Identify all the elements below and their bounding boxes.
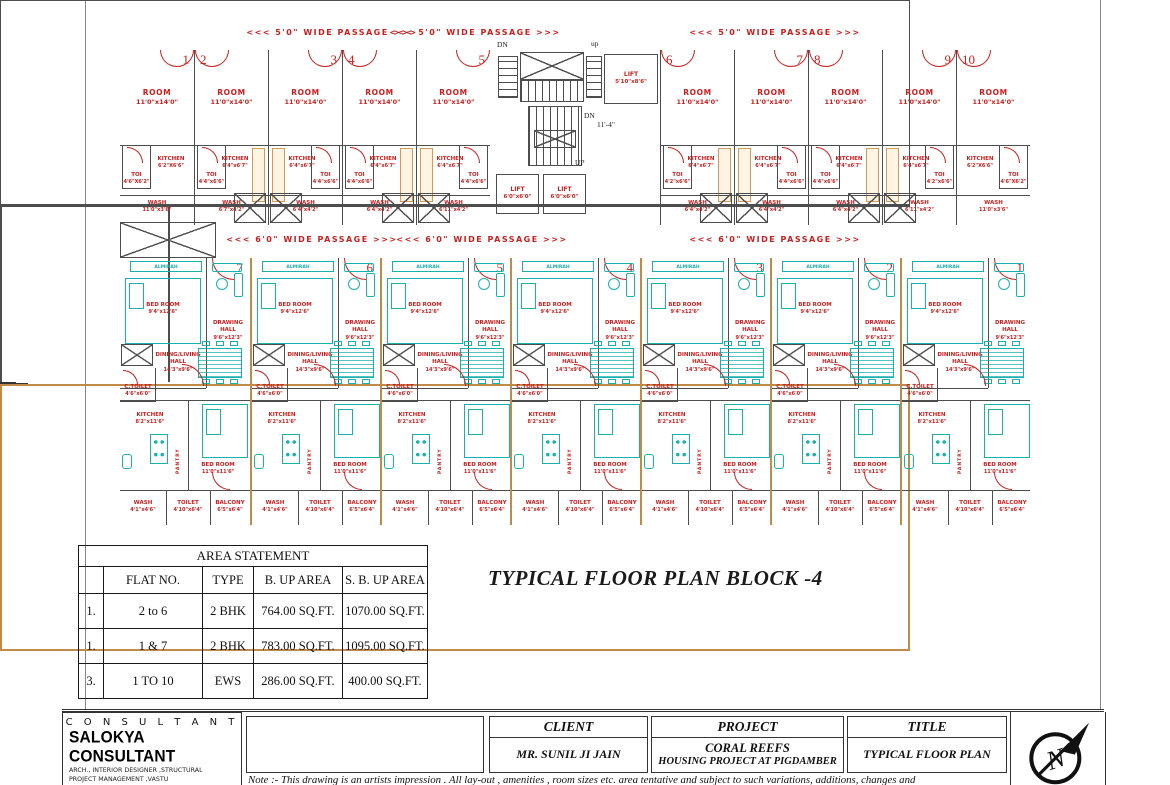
kitchen-label: KITCHEN8'2"x11'6"	[516, 412, 568, 426]
table-cell: 286.00 SQ.FT.	[254, 664, 343, 699]
wash-label-text: WASH	[902, 500, 948, 507]
toi-label-text: TOI	[123, 172, 150, 179]
door-arc-icon	[604, 472, 622, 490]
chair-icon	[348, 341, 356, 346]
common-toilet-label: C.TOILET4'6"x6'0"	[382, 384, 418, 398]
client-header: CLIENT	[490, 717, 647, 738]
sofa-icon	[886, 273, 895, 297]
drawing-hall-label-dim: 9'6"x12'3"	[728, 335, 772, 342]
balcony-label: BALCONY6'5"x6'4"	[992, 500, 1032, 514]
table-icon	[738, 278, 750, 290]
wall-line	[120, 400, 250, 401]
stair-side-icon	[586, 56, 602, 98]
lift-label-dim: 6'0"x6'0"	[551, 194, 579, 201]
toi-label-text: TOI	[926, 172, 953, 179]
table-header-cell: S. B. UP AREA	[343, 567, 428, 594]
wash-label-dim: 4'1"x4'6"	[902, 507, 948, 514]
wash-label-text: WASH	[512, 500, 558, 507]
chair-icon	[362, 341, 370, 346]
table-cell: 400.00 SQ.FT.	[343, 664, 428, 699]
titleblock-empty-box	[246, 716, 484, 773]
shaft-icon	[513, 344, 545, 366]
bhk-unit-1: 1ALMIRAHBED ROOM9'4"x12'6"DRAWING HALL9'…	[900, 258, 1030, 525]
room-label-dim: 11'0"x14'0"	[120, 98, 194, 107]
kitchen-label-dim: 8'2"x11'6"	[124, 419, 176, 426]
lift-label-dim: 5'10"x8'6"	[615, 79, 647, 86]
bed-room-label-text: BED ROOM	[777, 302, 853, 309]
wash-label: WASH4'1"x4'6"	[512, 500, 558, 514]
balcony-label-dim: 6'5"x6'4"	[602, 507, 642, 514]
lift-label-text: LIFT	[551, 186, 579, 194]
toilet-label-dim: 4'10"x6'4"	[688, 507, 732, 514]
table-header-cell	[79, 567, 104, 594]
toilet-box: TOI4'6"X6'2"	[122, 145, 151, 189]
wall-line	[120, 195, 194, 196]
stair-side-icon	[498, 56, 518, 98]
stair-dim-label: 11'-4"	[597, 120, 615, 129]
bhk-unit-7: 7ALMIRAHBED ROOM9'4"x12'6"DRAWING HALL9'…	[120, 258, 250, 525]
table-cell: 1.	[79, 594, 104, 629]
chair-icon	[1012, 379, 1020, 384]
drawing-hall-label-text: DRAWING HALL	[988, 320, 1032, 335]
sofa-icon	[734, 263, 764, 272]
pantry-label: PANTRY	[828, 432, 833, 474]
table-header-cell: B. UP AREA	[254, 567, 343, 594]
passage-label-mid: <<< 6'0" WIDE PASSAGE >>>	[396, 235, 567, 244]
passage-label-top: <<< 5'0" WIDE PASSAGE >>>	[389, 28, 560, 37]
toi-label-dim: 4'4"x6'6"	[778, 179, 805, 186]
chair-icon	[492, 379, 500, 384]
common-toilet-label-text: C.TOILET	[642, 384, 678, 391]
toi-label: TOI4'2"x6'6"	[926, 172, 953, 186]
toilet-label-text: TOILET	[166, 500, 210, 507]
drawing-hall-label-text: DRAWING HALL	[338, 320, 382, 335]
bed-icon	[724, 404, 770, 458]
room-label-text: ROOM	[120, 88, 194, 98]
door-arc-icon	[994, 472, 1012, 490]
room-label-text: ROOM	[661, 88, 734, 98]
plan-title: TYPICAL FLOOR PLAN BLOCK -4	[488, 566, 823, 591]
door-arc-icon	[202, 147, 218, 163]
drawing-hall-label: DRAWING HALL9'6"x12'3"	[858, 320, 902, 342]
chair-icon	[478, 341, 486, 346]
shaft-icon	[382, 193, 414, 223]
toilet-box: TOI4'4"x6'6"	[345, 145, 374, 189]
table-cell: 1 & 7	[104, 629, 203, 664]
common-toilet-label-dim: 4'6"x6'0"	[902, 391, 938, 398]
toilet-label: TOILET4'10"x6'4"	[688, 500, 732, 514]
common-toilet-label: C.TOILET4'6"x6'0"	[902, 384, 938, 398]
door-arc-icon	[782, 147, 798, 163]
common-toilet-label: C.TOILET4'6"x6'0"	[642, 384, 678, 398]
kitchen-label-dim: 6'2"X6'6"	[152, 163, 190, 170]
kitchen-label-text: KITCHEN	[646, 412, 698, 419]
toilet-label-text: TOILET	[298, 500, 342, 507]
door-arc-icon	[734, 472, 752, 490]
dining-table-icon	[590, 348, 634, 378]
balcony-label: BALCONY6'5"x6'4"	[862, 500, 902, 514]
chair-icon	[362, 379, 370, 384]
lift-label: LIFT6'0"x6'0"	[504, 186, 532, 202]
toi-label-text: TOI	[460, 172, 487, 179]
table-cell: 1095.00 SQ.FT.	[343, 629, 428, 664]
common-toilet-label-dim: 4'6"x6'0"	[642, 391, 678, 398]
disclaimer-note: Note :- This drawing is an artists impre…	[248, 774, 1028, 785]
kitchen-label-text: KITCHEN	[256, 412, 308, 419]
room-label: ROOM11'0"x14'0"	[343, 88, 416, 107]
wall-line	[252, 400, 380, 401]
chair-icon	[230, 379, 238, 384]
balcony-label-dim: 6'5"x6'4"	[732, 507, 772, 514]
table-icon	[998, 278, 1010, 290]
kitchen-label-text: KITCHEN	[516, 412, 568, 419]
bed-room-label-text: BED ROOM	[125, 302, 201, 309]
project-name: CORAL REEFS	[652, 741, 843, 756]
toi-label-text: TOI	[664, 172, 691, 179]
toi-label: TOI4'6"X6'2"	[123, 172, 150, 186]
consultant-header: C O N S U L T A N T	[63, 717, 241, 728]
wash-label-dim: 4'1"x4'6"	[642, 507, 688, 514]
toi-label-dim: 4'4"x6'6"	[312, 179, 339, 186]
wash-label-text: WASH	[120, 500, 166, 507]
dining-table-icon	[720, 348, 764, 378]
sink-icon	[384, 454, 394, 469]
client-name: MR. SUNIL JI JAIN	[490, 738, 647, 762]
room-label: ROOM11'0"x14'0"	[195, 88, 268, 107]
drawing-hall-label: DRAWING HALL9'6"x12'3"	[598, 320, 642, 342]
toilet-box: TOI4'2"x6'6"	[663, 145, 692, 189]
toi-label: TOI4'4"x6'6"	[198, 172, 225, 186]
chair-icon	[882, 341, 890, 346]
passage-label-mid: <<< 6'0" WIDE PASSAGE >>>	[689, 235, 860, 244]
chair-icon	[738, 379, 746, 384]
client-box: CLIENT MR. SUNIL JI JAIN	[489, 716, 648, 773]
toi-label: TOI4'4"x6'6"	[346, 172, 373, 186]
bhk-unit-2: 2ALMIRAHBED ROOM9'4"x12'6"DRAWING HALL9'…	[770, 258, 900, 525]
shaft-icon	[736, 193, 768, 223]
wash-label: WASH4'1"x4'6"	[252, 500, 298, 514]
wall-line	[957, 195, 1030, 196]
room-label-text: ROOM	[195, 88, 268, 98]
toi-label-text: TOI	[812, 172, 839, 179]
kitchen-label-dim: 6'2"X6'6"	[961, 163, 999, 170]
kitchen-label-dim: 8'2"x11'6"	[256, 419, 308, 426]
balcony-label-text: BALCONY	[210, 500, 250, 507]
stove-icon	[932, 434, 950, 464]
balcony-label: BALCONY6'5"x6'4"	[602, 500, 642, 514]
balcony-label-text: BALCONY	[732, 500, 772, 507]
balcony-label-dim: 6'5"x6'4"	[210, 507, 250, 514]
kitchen-label: KITCHEN6'2"X6'6"	[152, 156, 190, 170]
toilet-label-text: TOILET	[428, 500, 472, 507]
room-label-text: ROOM	[343, 88, 416, 98]
sofa-icon	[474, 263, 504, 272]
balcony-label-text: BALCONY	[472, 500, 512, 507]
chair-icon	[882, 379, 890, 384]
toilet-label-text: TOILET	[558, 500, 602, 507]
bed-icon	[854, 404, 900, 458]
sofa-icon	[344, 263, 374, 272]
room-label-dim: 11'0"x14'0"	[417, 98, 490, 107]
table-cell: 3.	[79, 664, 104, 699]
wash-label: WASH4'1"x4'6"	[120, 500, 166, 514]
drawing-sheet: <<< 5'0" WIDE PASSAGE >>><<< 5'0" WIDE P…	[0, 0, 1170, 785]
ews-unit-1: 1ROOM11'0"x14'0"KITCHEN6'2"X6'6"TOI4'6"X…	[120, 50, 194, 225]
bed-room-label: BED ROOM9'4"x12'6"	[257, 302, 333, 316]
table-header-cell: FLAT NO.	[104, 567, 203, 594]
toilet-label: TOILET4'10"x6'4"	[298, 500, 342, 514]
toi-label-text: TOI	[1000, 172, 1027, 179]
table-icon	[216, 278, 228, 290]
table-cell: 783.00 SQ.FT.	[254, 629, 343, 664]
table-row: 1.2 to 62 BHK764.00 SQ.FT.1070.00 SQ.FT.	[79, 594, 428, 629]
sofa-icon	[756, 273, 765, 297]
wall-line	[252, 490, 380, 491]
common-toilet-label-text: C.TOILET	[120, 384, 156, 391]
common-toilet-label-text: C.TOILET	[902, 384, 938, 391]
sink-icon	[904, 454, 914, 469]
common-toilet-label-text: C.TOILET	[512, 384, 548, 391]
pantry-label: PANTRY	[438, 432, 443, 474]
stove-icon	[282, 434, 300, 464]
common-toilet-label: C.TOILET4'6"x6'0"	[772, 384, 808, 398]
common-toilet-label-dim: 4'6"x6'0"	[252, 391, 288, 398]
chair-icon	[622, 379, 630, 384]
shaft-icon	[773, 344, 805, 366]
wash-label-text: WASH	[772, 500, 818, 507]
drawing-hall-label-text: DRAWING HALL	[206, 320, 250, 335]
toilet-label-text: TOILET	[818, 500, 862, 507]
door-arc-icon	[127, 147, 143, 163]
toilet-box: TOI4'4"x6'6"	[777, 145, 806, 189]
sofa-icon	[496, 273, 505, 297]
toi-label-text: TOI	[198, 172, 225, 179]
project-header: PROJECT	[652, 717, 843, 738]
sofa-icon	[994, 263, 1024, 272]
toi-label: TOI4'2"x6'6"	[664, 172, 691, 186]
bhk-unit-6: 6ALMIRAHBED ROOM9'4"x12'6"DRAWING HALL9'…	[250, 258, 380, 525]
chair-icon	[216, 341, 224, 346]
common-toilet-label-dim: 4'6"x6'0"	[512, 391, 548, 398]
chair-icon	[492, 341, 500, 346]
common-toilet-label-dim: 4'6"x6'0"	[120, 391, 156, 398]
dining-table-icon	[198, 348, 242, 378]
toilet-box: TOI4'4"x6'6"	[459, 145, 488, 189]
kitchen-label-dim: 8'2"x11'6"	[646, 419, 698, 426]
area-statement-table: AREA STATEMENTFLAT NO.TYPEB. UP AREAS. B…	[78, 545, 428, 699]
wash-label-dim: 4'1"x4'6"	[382, 507, 428, 514]
room-label: ROOM11'0"x14'0"	[269, 88, 342, 107]
stair-dn-label: DN	[497, 40, 508, 49]
bed-room-label-text: BED ROOM	[257, 302, 333, 309]
common-toilet-label: C.TOILET4'6"x6'0"	[120, 384, 156, 398]
wash-label: WASH4'1"x4'6"	[642, 500, 688, 514]
project-box: PROJECT CORAL REEFS HOUSING PROJECT AT P…	[651, 716, 844, 773]
toilet-box: TOI4'6"X6'2"	[999, 145, 1028, 189]
wash-label-dim: 4'1"x4'6"	[252, 507, 298, 514]
chair-icon	[854, 341, 862, 346]
sofa-icon	[626, 273, 635, 297]
drawing-hall-label-dim: 9'6"x12'3"	[468, 335, 512, 342]
toi-label-text: TOI	[778, 172, 805, 179]
pantry-label: PANTRY	[308, 432, 313, 474]
drawing-hall-label-dim: 9'6"x12'3"	[988, 335, 1032, 342]
toilet-label-text: TOILET	[948, 500, 992, 507]
pantry-label: PANTRY	[176, 432, 181, 474]
toilet-label: TOILET4'10"x6'4"	[558, 500, 602, 514]
toilet-label: TOILET4'10"x6'4"	[428, 500, 472, 514]
table-cell: EWS	[203, 664, 254, 699]
room-label-text: ROOM	[417, 88, 490, 98]
chair-icon	[998, 379, 1006, 384]
toilet-label-dim: 4'10"x6'4"	[428, 507, 472, 514]
bed-room-label-text: BED ROOM	[838, 462, 902, 469]
bed-room-label-dim: 9'4"x12'6"	[517, 309, 593, 316]
toi-label-text: TOI	[312, 172, 339, 179]
chair-icon	[622, 341, 630, 346]
wash-label-dim: 4'1"x4'6"	[512, 507, 558, 514]
bed-room-label-dim: 9'4"x12'6"	[647, 309, 723, 316]
wall-line	[320, 400, 321, 490]
door-arc-icon	[1004, 147, 1020, 163]
balcony-label-text: BALCONY	[862, 500, 902, 507]
sink-icon	[122, 454, 132, 469]
balcony-label-text: BALCONY	[992, 500, 1032, 507]
table-cell: 2 BHK	[203, 629, 254, 664]
wash-label: WASH4'1"x4'6"	[772, 500, 818, 514]
consultant-line: PROJECT MANAGEMENT ,VASTU	[69, 775, 241, 784]
stair-flight-icon	[520, 52, 584, 80]
wash-label-dim: 4'1"x4'6"	[120, 507, 166, 514]
toilet-box: TOI4'4"x6'6"	[197, 145, 226, 189]
drawing-hall-label: DRAWING HALL9'6"x12'3"	[468, 320, 512, 342]
chair-icon	[230, 341, 238, 346]
sink-icon	[644, 454, 654, 469]
door-arc-icon	[668, 147, 684, 163]
shaft-icon	[643, 344, 675, 366]
table-cell: 1 TO 10	[104, 664, 203, 699]
room-label-text: ROOM	[809, 88, 882, 98]
drawing-hall-label: DRAWING HALL9'6"x12'3"	[988, 320, 1032, 342]
toi-label: TOI4'4"x6'6"	[812, 172, 839, 186]
drawing-hall-label: DRAWING HALL9'6"x12'3"	[206, 320, 250, 342]
shaft-icon	[120, 222, 216, 258]
shaft-icon	[700, 193, 732, 223]
kitchen-label: KITCHEN8'2"x11'6"	[386, 412, 438, 426]
wall-line	[840, 400, 841, 490]
toilet-label-dim: 4'10"x6'4"	[948, 507, 992, 514]
kitchen-label-dim: 8'2"x11'6"	[516, 419, 568, 426]
stair-up-label: UP	[575, 158, 585, 167]
drawing-hall-label-text: DRAWING HALL	[598, 320, 642, 335]
almirah-label: ALMIRAH	[522, 261, 594, 272]
drawing-hall-label-dim: 9'6"x12'3"	[858, 335, 902, 342]
chair-icon	[868, 341, 876, 346]
lift-box-1: LIFT6'0"x6'0"	[496, 174, 539, 214]
bed-room-label-text: BED ROOM	[647, 302, 723, 309]
room-label-text: ROOM	[883, 88, 956, 98]
bed-icon	[464, 404, 510, 458]
drawing-hall-label-dim: 9'6"x12'3"	[598, 335, 642, 342]
table-icon	[348, 278, 360, 290]
stair-flight-icon	[534, 130, 576, 148]
bed-room-label: BED ROOM9'4"x12'6"	[517, 302, 593, 316]
bed-room-label-text: BED ROOM	[517, 302, 593, 309]
room-label-dim: 11'0"x14'0"	[661, 98, 734, 107]
wash-label: WASH11'0"x3'6"	[957, 200, 1030, 214]
stove-icon	[672, 434, 690, 464]
shaft-icon	[418, 193, 450, 223]
common-toilet-label-text: C.TOILET	[252, 384, 288, 391]
room-label: ROOM11'0"x14'0"	[883, 88, 956, 107]
room-label-text: ROOM	[735, 88, 808, 98]
table-cell: 2 to 6	[104, 594, 203, 629]
kitchen-label: KITCHEN8'2"x11'6"	[256, 412, 308, 426]
balcony-label: BALCONY6'5"x6'4"	[732, 500, 772, 514]
toi-label: TOI4'4"x6'6"	[312, 172, 339, 186]
lift-top-box: LIFT5'10"x8'6"	[604, 54, 658, 104]
toi-label-dim: 4'2"x6'6"	[926, 179, 953, 186]
shaft-icon	[253, 344, 285, 366]
shaft-icon	[848, 193, 880, 223]
chair-icon	[608, 379, 616, 384]
shaft-icon	[234, 193, 266, 223]
almirah-label: ALMIRAH	[130, 261, 202, 272]
chair-icon	[202, 341, 210, 346]
sofa-icon	[1016, 273, 1025, 297]
drawing-hall-label-dim: 9'6"x12'3"	[206, 335, 250, 342]
table-row: 1.1 & 72 BHK783.00 SQ.FT.1095.00 SQ.FT.	[79, 629, 428, 664]
wall-line	[902, 490, 1030, 491]
balcony-label-dim: 6'5"x6'4"	[472, 507, 512, 514]
compass-box: N	[1010, 712, 1106, 785]
toi-label: TOI4'6"X6'2"	[1000, 172, 1027, 186]
balcony-label-dim: 6'5"x6'4"	[342, 507, 382, 514]
kitchen-label: KITCHEN8'2"x11'6"	[646, 412, 698, 426]
kitchen-label-text: KITCHEN	[124, 412, 176, 419]
door-arc-icon	[930, 147, 946, 163]
sofa-icon	[234, 273, 243, 297]
toilet-label: TOILET4'10"x6'4"	[948, 500, 992, 514]
chair-icon	[608, 341, 616, 346]
room-label: ROOM11'0"x14'0"	[809, 88, 882, 107]
balcony-label: BALCONY6'5"x6'4"	[472, 500, 512, 514]
toilet-label: TOILET4'10"x6'4"	[818, 500, 862, 514]
wall-line	[970, 400, 971, 490]
kitchen-label-text: KITCHEN	[152, 156, 190, 163]
bed-icon	[334, 404, 380, 458]
drawing-title-header: TITLE	[848, 717, 1006, 738]
bed-icon	[594, 404, 640, 458]
kitchen-label-text: KITCHEN	[386, 412, 438, 419]
table-icon	[868, 278, 880, 290]
wall-line	[512, 490, 640, 491]
room-label-dim: 11'0"x14'0"	[883, 98, 956, 107]
wall-line	[120, 490, 250, 491]
project-subtitle: HOUSING PROJECT AT PIGDAMBER	[652, 756, 843, 767]
door-arc-icon	[464, 147, 480, 163]
drawing-hall-label-dim: 9'6"x12'3"	[338, 335, 382, 342]
wall-line	[450, 400, 451, 490]
room-label-dim: 11'0"x14'0"	[735, 98, 808, 107]
room-label-dim: 11'0"x14'0"	[269, 98, 342, 107]
stove-icon	[802, 434, 820, 464]
toilet-label: TOILET4'10"x6'4"	[166, 500, 210, 514]
bed-room-label: BED ROOM9'4"x12'6"	[125, 302, 201, 316]
room-label-dim: 11'0"x14'0"	[957, 98, 1030, 107]
bed-room-label: BED ROOM9'4"x12'6"	[777, 302, 853, 316]
wall-line	[512, 400, 640, 401]
